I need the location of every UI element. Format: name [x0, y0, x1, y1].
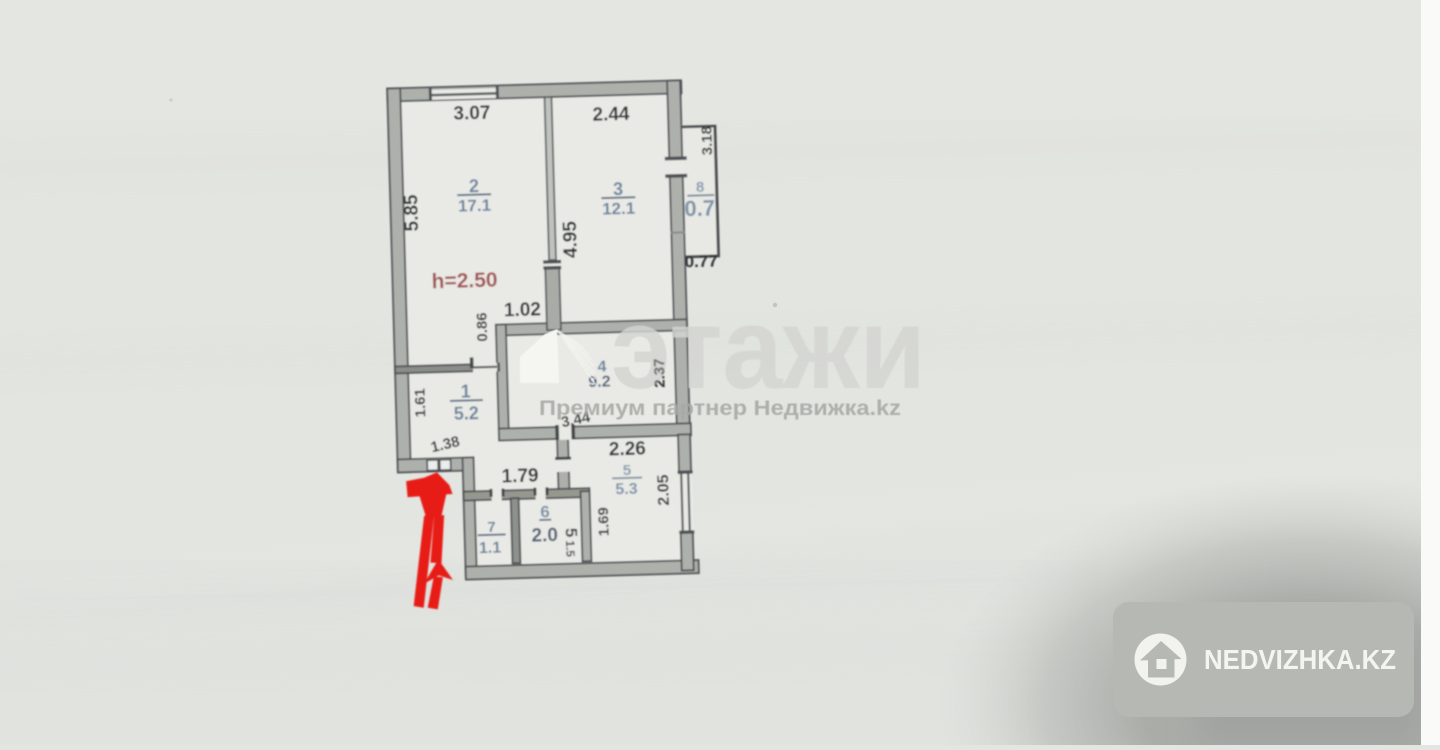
svg-text:2.37: 2.37 [651, 358, 669, 388]
svg-text:1.1: 1.1 [479, 540, 502, 558]
svg-text:1.69: 1.69 [595, 507, 613, 537]
svg-text:17.1: 17.1 [458, 196, 492, 216]
svg-text:1.61: 1.61 [412, 388, 430, 418]
svg-text:4.95: 4.95 [560, 220, 582, 258]
svg-text:3.18: 3.18 [698, 126, 716, 156]
svg-text:8: 8 [696, 179, 705, 196]
svg-text:3: 3 [613, 179, 624, 199]
svg-text:2: 2 [469, 176, 480, 196]
svg-text:1.79: 1.79 [501, 466, 539, 488]
svg-text:9.2: 9.2 [588, 373, 611, 391]
svg-text:2.26: 2.26 [609, 439, 647, 461]
svg-text:этажи: этажи [611, 283, 926, 413]
svg-text:NEDVIZHKA.KZ: NEDVIZHKA.KZ [1204, 644, 1396, 675]
svg-text:5: 5 [623, 462, 632, 479]
svg-text:0.7: 0.7 [684, 195, 715, 221]
svg-text:1.5: 1.5 [563, 540, 577, 557]
svg-text:2.44: 2.44 [592, 104, 630, 126]
svg-text:5.2: 5.2 [454, 403, 480, 424]
svg-text:0.86: 0.86 [473, 312, 491, 342]
svg-text:5.85: 5.85 [401, 194, 423, 232]
svg-text:3.07: 3.07 [453, 103, 491, 125]
svg-text:2.05: 2.05 [655, 474, 673, 506]
svg-text:5.3: 5.3 [615, 481, 638, 499]
svg-text:1: 1 [460, 381, 471, 401]
svg-text:7: 7 [487, 519, 496, 536]
svg-text:1.02: 1.02 [504, 299, 542, 321]
svg-text:6: 6 [540, 502, 550, 521]
svg-text:12.1: 12.1 [602, 199, 636, 219]
svg-text:h=2.50: h=2.50 [431, 269, 498, 294]
svg-text:2.0: 2.0 [531, 525, 558, 547]
svg-text:5: 5 [562, 528, 581, 538]
svg-text:Премиум партнер Недвижка.kz: Премиум партнер Недвижка.kz [539, 397, 901, 420]
svg-text:0.77: 0.77 [684, 251, 718, 271]
